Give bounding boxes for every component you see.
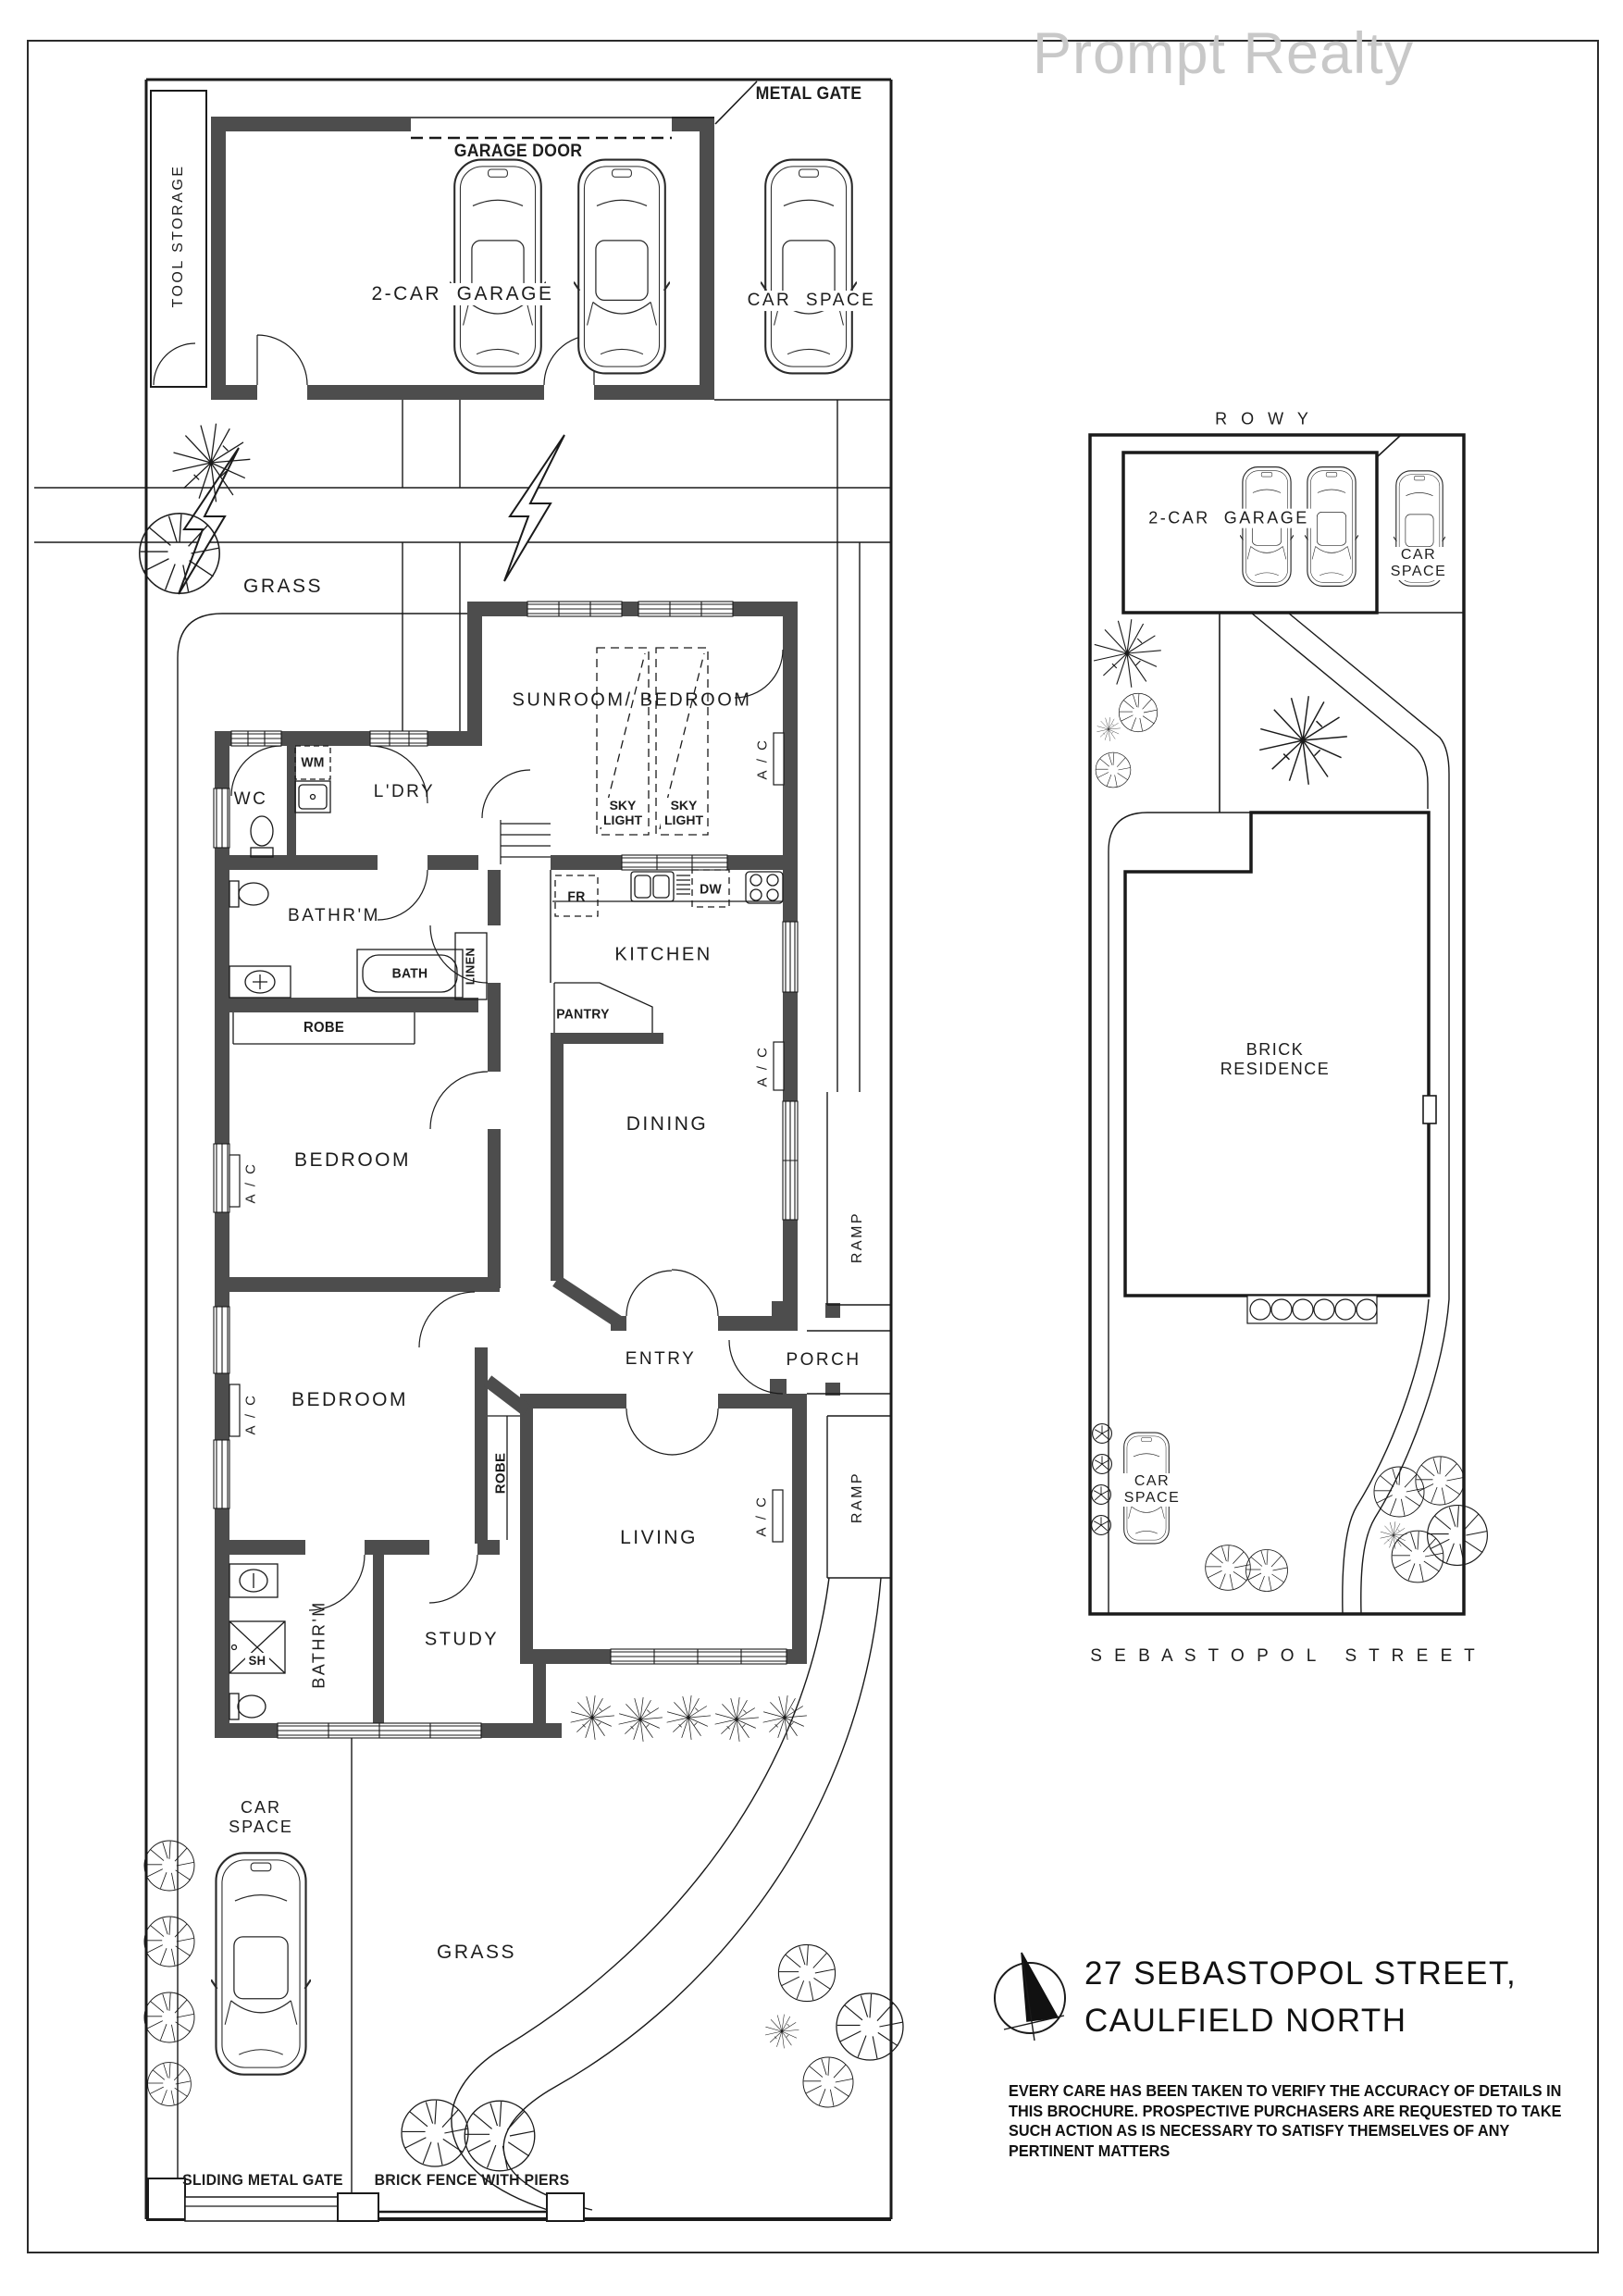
label-sunroom: SUNROOM/ BEDROOM [513, 690, 752, 712]
label-ac-dining: A / C [754, 1045, 770, 1086]
shrub-icon [715, 1697, 759, 1742]
label-tool-storage: TOOL STORAGE [170, 164, 187, 307]
tree-icon [144, 1992, 194, 2042]
label-car-space-bottom: CARSPACE [229, 1798, 293, 1837]
label-garage: 2-CAR GARAGE [367, 283, 557, 305]
lightning-break-icon [504, 435, 564, 581]
label-site-car-space-tr: CARSPACE [1387, 547, 1451, 580]
toilet-icon [229, 1694, 266, 1719]
shrub-icon [571, 1695, 614, 1740]
label-linen: LINEN [465, 948, 478, 986]
label-wm: WM [301, 754, 324, 770]
label-laundry: L'DRY [374, 782, 435, 802]
label-fridge: FR [567, 888, 585, 904]
label-shower: SH [245, 1653, 269, 1668]
car-icon [211, 1853, 311, 2074]
label-skylight-2: SKYLIGHT [661, 798, 707, 827]
tree-icon [803, 2057, 853, 2107]
watermark: Prompt Realty [1033, 20, 1414, 87]
tree-icon [144, 1917, 194, 1967]
tree-icon [144, 1841, 194, 1891]
label-metal-gate: METAL GATE [756, 84, 862, 105]
tree-icon [1096, 752, 1131, 788]
property-address: 27 SEBASTOPOL STREET, CAULFIELD NORTH [1084, 1951, 1517, 2045]
label-entry: ENTRY [626, 1349, 697, 1370]
label-robe-2: ROBE [492, 1453, 508, 1495]
residence-shrub-row [1247, 1296, 1377, 1323]
shrub-icon [1096, 717, 1120, 741]
shrub-icon [765, 2015, 799, 2049]
north-arrow-icon [995, 1953, 1065, 2041]
label-study: STUDY [425, 1630, 499, 1651]
basin-icon [229, 1564, 278, 1597]
shrub-icon [1092, 1516, 1111, 1535]
disclaimer-text: EVERY CARE HAS BEEN TAKEN TO VERIFY THE … [1009, 2081, 1561, 2162]
label-bath: BATH [389, 965, 431, 981]
garage-door-arcs [257, 335, 594, 385]
tree-icon [402, 2100, 468, 2166]
tree-icon [148, 2063, 192, 2106]
shrub-icon [1092, 1485, 1111, 1505]
car-icon [761, 160, 857, 374]
label-ac-bedroom-2: A / C [242, 1393, 258, 1434]
car-icon [574, 160, 670, 374]
label-garage-door: GARAGE DOOR [454, 142, 583, 162]
tree-icon [778, 1944, 835, 2001]
label-bedroom-2: BEDROOM [291, 1389, 408, 1411]
label-bedroom-1: BEDROOM [294, 1149, 411, 1172]
tree-icon [1428, 1506, 1488, 1566]
label-ac-bedroom-1: A / C [242, 1161, 258, 1203]
address-line-1: 27 SEBASTOPOL STREET, [1084, 1951, 1517, 1998]
label-skylight-1: SKYLIGHT [600, 798, 646, 827]
toilet-icon [251, 816, 273, 857]
tree-icon [1246, 1550, 1288, 1592]
tree-icon [1259, 696, 1347, 785]
label-robe-1: ROBE [304, 1020, 344, 1036]
walkway-lines [403, 400, 460, 731]
label-pantry: PANTRY [556, 1006, 609, 1022]
angled-walls [488, 1281, 618, 1410]
laundry-sink-icon [295, 781, 330, 813]
label-kitchen: KITCHEN [614, 945, 712, 966]
shrub-icon [619, 1697, 663, 1742]
break-band [34, 435, 891, 594]
label-ac-sunroom: A / C [754, 738, 770, 779]
label-street: S E B A S T O P O L S T R E E T [1090, 1646, 1479, 1667]
tree-icon [1206, 1545, 1251, 1591]
shrub-icon [763, 1695, 807, 1740]
label-brick-residence: BRICKRESIDENCE [1220, 1040, 1331, 1079]
tree-icon [1094, 619, 1161, 688]
basin-icon [229, 966, 291, 998]
address-line-2: CAULFIELD NORTH [1084, 1998, 1517, 2045]
toilet-icon [229, 881, 268, 907]
tree-icon [140, 514, 219, 593]
tree-icon [1416, 1457, 1464, 1505]
label-site-car-space-bl: CARSPACE [1121, 1473, 1184, 1507]
label-porch: PORCH [782, 1350, 864, 1371]
label-living: LIVING [620, 1527, 698, 1549]
label-site-garage: 2-CAR GARAGE [1145, 509, 1313, 528]
tree-icon [465, 2101, 535, 2171]
label-ramp-1: RAMP [849, 1211, 866, 1263]
bathroom2-fixtures [229, 1564, 285, 1719]
stove-icon [746, 872, 783, 903]
metal-gate-line [715, 81, 757, 124]
steps [501, 820, 551, 864]
label-wc: WC [234, 789, 268, 810]
label-ramp-2: RAMP [849, 1471, 866, 1523]
label-grass-top: GRASS [243, 576, 323, 598]
label-ac-living: A / C [753, 1495, 769, 1536]
tree-icon [836, 1993, 903, 2060]
shrub-icon [667, 1695, 711, 1740]
label-bathroom-2: BATHR'M [310, 1600, 329, 1689]
driveway-curves [452, 1578, 881, 2210]
sliding-gate-icon [185, 2197, 338, 2221]
label-brick-fence: BRICK FENCE WITH PIERS [375, 2171, 570, 2190]
label-row: R O W Y [1215, 410, 1313, 429]
brochure-page: Prompt Realty METAL GATE GARAGE DOOR 2-C… [0, 0, 1623, 2296]
label-dishwasher: DW [700, 881, 722, 897]
tree-icon [1119, 693, 1157, 731]
label-bathroom-1: BATHR'M [288, 906, 380, 926]
car-icon [450, 160, 546, 374]
label-dining: DINING [626, 1113, 709, 1136]
label-sliding-gate: SLIDING METAL GATE [182, 2171, 343, 2190]
label-car-space-top: CAR SPACE [744, 291, 880, 311]
side-path [837, 400, 860, 1092]
label-grass-bottom: GRASS [437, 1942, 516, 1964]
sink-icon [631, 872, 690, 901]
